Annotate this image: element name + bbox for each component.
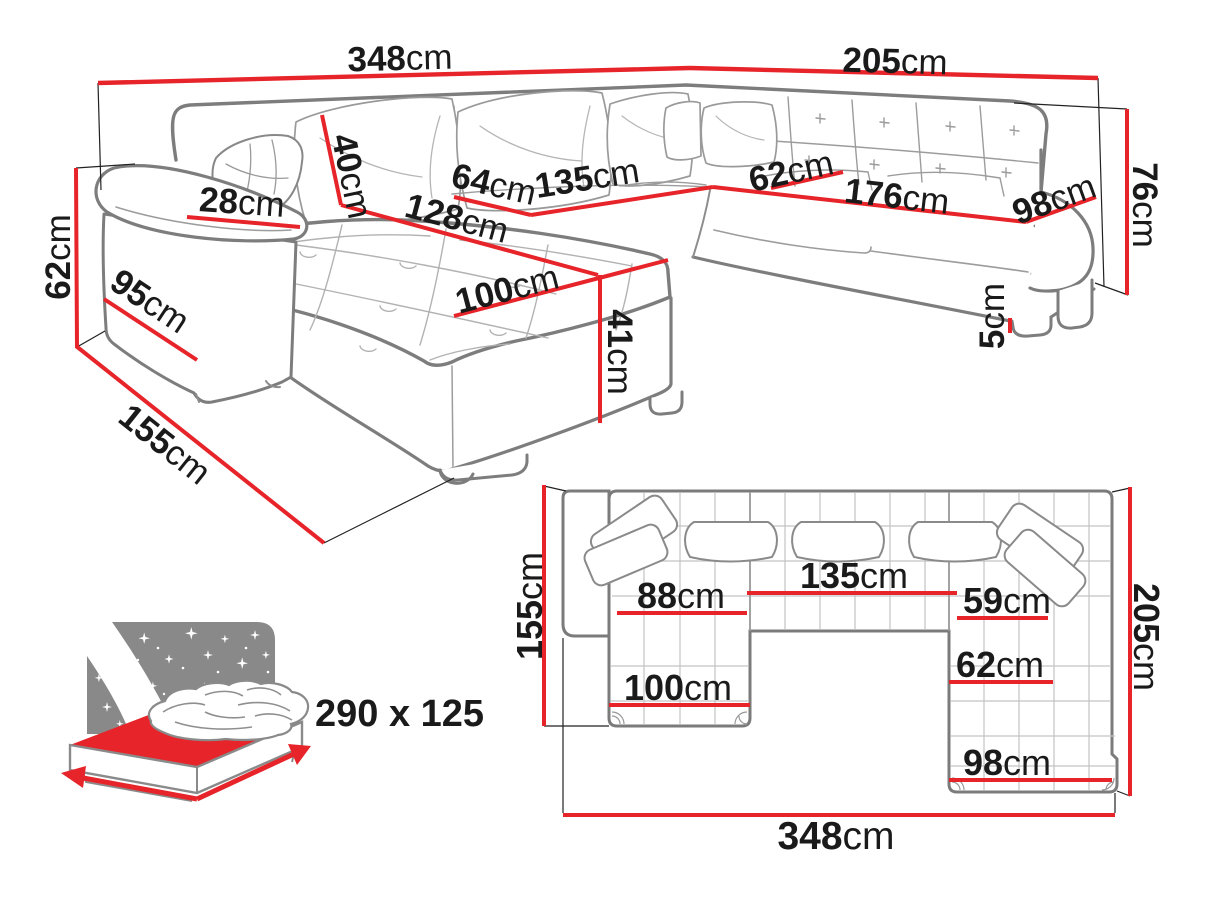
svg-text:59cm: 59cm (963, 580, 1051, 621)
svg-text:205cm: 205cm (1126, 583, 1167, 691)
svg-text:41cm: 41cm (600, 309, 639, 395)
svg-text:28cm: 28cm (198, 180, 286, 225)
svg-text:62cm: 62cm (39, 214, 78, 300)
svg-text:76cm: 76cm (1125, 162, 1164, 248)
svg-text:348cm: 348cm (777, 815, 894, 858)
svg-text:98cm: 98cm (963, 742, 1051, 783)
svg-text:100cm: 100cm (624, 667, 732, 708)
svg-text:155cm: 155cm (509, 552, 550, 660)
svg-text:348cm: 348cm (347, 38, 453, 80)
svg-text:62cm: 62cm (956, 644, 1044, 685)
svg-text:205cm: 205cm (842, 41, 948, 83)
svg-text:290 x 125: 290 x 125 (315, 693, 484, 735)
svg-text:88cm: 88cm (637, 575, 725, 616)
svg-text:5cm: 5cm (973, 283, 1012, 349)
svg-text:135cm: 135cm (800, 555, 908, 596)
